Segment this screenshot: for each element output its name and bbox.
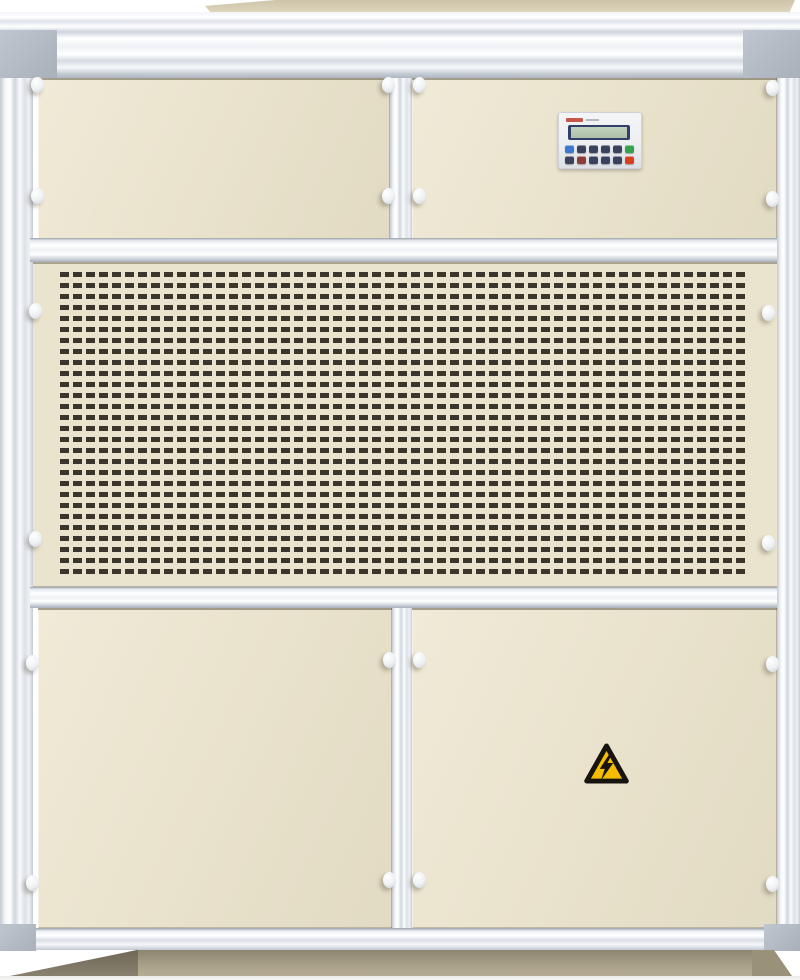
keypad-key-dark bbox=[577, 145, 586, 153]
panel-latch-knob bbox=[382, 188, 395, 204]
left-frame-column bbox=[0, 78, 33, 950]
panel-latch-knob bbox=[26, 655, 39, 671]
panel-latch-knob bbox=[382, 77, 395, 93]
keypad-key-dark bbox=[589, 145, 598, 153]
panel-latch-knob bbox=[413, 652, 426, 668]
top-frame-rail bbox=[0, 12, 800, 78]
lower-left-door bbox=[38, 608, 392, 928]
keypad-key-green bbox=[625, 145, 634, 153]
panel-latch-knob bbox=[413, 188, 426, 204]
keypad-key-dark bbox=[601, 156, 610, 164]
keypad-key-maroon bbox=[577, 156, 586, 164]
floor-shadow bbox=[0, 976, 800, 980]
panel-latch-knob bbox=[766, 656, 779, 672]
panel-latch-knob bbox=[29, 531, 42, 547]
panel-latch-knob bbox=[31, 77, 44, 93]
upper-left-access-panel bbox=[38, 78, 390, 240]
upper-mullion bbox=[390, 78, 412, 240]
panel-latch-knob bbox=[383, 872, 396, 888]
base-foot-right bbox=[752, 950, 792, 976]
panel-latch-knob bbox=[29, 303, 42, 319]
keypad-key-dark bbox=[565, 156, 574, 164]
keypad-row-1 bbox=[565, 145, 634, 153]
keypad-key-dark bbox=[613, 145, 622, 153]
keypad-key-dark bbox=[589, 156, 598, 164]
keypad-row-2 bbox=[565, 156, 634, 164]
panel-latch-knob bbox=[766, 191, 779, 207]
panel-latch-knob bbox=[413, 872, 426, 888]
panel-latch-knob bbox=[766, 876, 779, 892]
keypad-key-red bbox=[625, 156, 634, 164]
frame-corner-bottom-right bbox=[764, 924, 800, 951]
controller-lcd-display bbox=[568, 125, 630, 140]
ahu-cabinet-photo bbox=[0, 0, 800, 980]
high-voltage-icon bbox=[584, 737, 629, 790]
panel-latch-knob bbox=[26, 875, 39, 891]
frame-corner-top-right bbox=[743, 30, 800, 78]
base-plinth bbox=[138, 950, 752, 976]
right-frame-column bbox=[777, 78, 800, 950]
frame-corner-bottom-left bbox=[0, 924, 36, 951]
panel-latch-knob bbox=[383, 652, 396, 668]
bottom-frame-rail bbox=[30, 928, 777, 950]
panel-latch-knob bbox=[762, 305, 775, 321]
controller-brand-logo bbox=[566, 118, 583, 122]
mid-frame-rail-upper bbox=[30, 238, 777, 262]
panel-latch-knob bbox=[413, 77, 426, 93]
frame-corner-top-left bbox=[0, 30, 57, 78]
keypad-key-dark bbox=[613, 156, 622, 164]
keypad-key-dark bbox=[601, 145, 610, 153]
panel-latch-knob bbox=[762, 535, 775, 551]
controller-brand-subtext bbox=[586, 119, 599, 121]
panel-latch-knob bbox=[31, 188, 44, 204]
controller-unit bbox=[558, 112, 642, 169]
air-intake-grille-panel bbox=[33, 262, 777, 587]
panel-latch-knob bbox=[766, 80, 779, 96]
keypad-key-blue bbox=[565, 145, 574, 153]
perforated-grille bbox=[60, 272, 745, 574]
base-foot-left bbox=[0, 948, 138, 978]
mid-frame-rail-lower bbox=[30, 587, 777, 608]
lcd-screen bbox=[571, 127, 627, 138]
